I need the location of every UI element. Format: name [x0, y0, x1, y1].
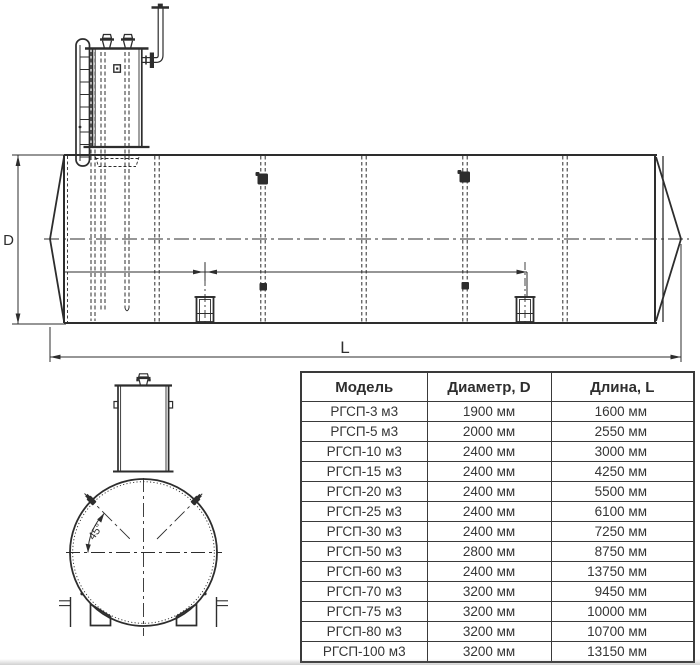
vent-pipe [142, 4, 169, 68]
cell-length: 10700 мм [551, 622, 694, 642]
table-row: РГСП-30 м32400 мм7250 мм [301, 522, 694, 542]
table-row: РГСП-10 м32400 мм3000 мм [301, 442, 694, 462]
table-row: РГСП-80 м33200 мм10700 мм [301, 622, 694, 642]
table-row: РГСП-50 м32800 мм8750 мм [301, 542, 694, 562]
cell-diameter: 2400 мм [427, 502, 551, 522]
dimension-L: L [50, 244, 681, 362]
cell-diameter: 2400 мм [427, 442, 551, 462]
table-row: РГСП-60 м32400 мм13750 мм [301, 562, 694, 582]
photo-edge-shadow [0, 659, 700, 665]
technological-shaft [84, 49, 150, 167]
col-header-model: Модель [301, 372, 427, 402]
cell-model: РГСП-30 м3 [301, 522, 427, 542]
cell-diameter: 3200 мм [427, 602, 551, 622]
roof-nozzle-2 [121, 35, 135, 49]
cell-diameter: 2400 мм [427, 562, 551, 582]
cell-length: 13750 мм [551, 562, 694, 582]
dimension-45deg: 45° [86, 513, 106, 552]
cell-length: 5500 мм [551, 482, 694, 502]
cell-model: РГСП-15 м3 [301, 462, 427, 482]
cell-length: 9450 мм [551, 582, 694, 602]
pipe-end-cap [125, 308, 129, 311]
cell-model: РГСП-60 м3 [301, 562, 427, 582]
cell-diameter: 1900 мм [427, 402, 551, 422]
cell-model: РГСП-75 м3 [301, 602, 427, 622]
label-D: D [3, 232, 14, 249]
cell-model: РГСП-25 м3 [301, 502, 427, 522]
tank-front-view: 45° [59, 374, 228, 636]
tank-drawing-page: D L [0, 0, 700, 665]
cell-diameter: 2800 мм [427, 542, 551, 562]
cell-length: 6100 мм [551, 502, 694, 522]
cell-model: РГСП-10 м3 [301, 442, 427, 462]
tank-side-view: D L [3, 4, 689, 362]
cell-length: 10000 мм [551, 602, 694, 622]
front-shaft [113, 386, 174, 472]
cell-model: РГСП-50 м3 [301, 542, 427, 562]
spec-table-container: Модель Диаметр, D Длина, L РГСП-3 м31900… [300, 371, 695, 663]
table-row: РГСП-3 м31900 мм1600 мм [301, 402, 694, 422]
table-row: РГСП-70 м33200 мм9450 мм [301, 582, 694, 602]
front-top-nozzle [136, 374, 150, 386]
cell-diameter: 3200 мм [427, 582, 551, 602]
cell-length: 8750 мм [551, 542, 694, 562]
cell-model: РГСП-80 м3 [301, 622, 427, 642]
cell-model: РГСП-3 м3 [301, 402, 427, 422]
dimension-supports-span [65, 263, 527, 297]
table-row: РГСП-25 м32400 мм6100 мм [301, 502, 694, 522]
label-L: L [340, 338, 349, 357]
cell-length: 3000 мм [551, 442, 694, 462]
table-row: РГСП-20 м32400 мм5500 мм [301, 482, 694, 502]
col-header-length: Длина, L [551, 372, 694, 402]
cell-model: РГСП-20 м3 [301, 482, 427, 502]
pipe-flange [150, 53, 154, 69]
cell-model: РГСП-70 м3 [301, 582, 427, 602]
cell-length: 7250 мм [551, 522, 694, 542]
table-header-row: Модель Диаметр, D Длина, L [301, 372, 694, 402]
cell-diameter: 2000 мм [427, 422, 551, 442]
table-row: РГСП-15 м32400 мм4250 мм [301, 462, 694, 482]
cell-length: 4250 мм [551, 462, 694, 482]
table-row: РГСП-75 м33200 мм10000 мм [301, 602, 694, 622]
cell-diameter: 2400 мм [427, 522, 551, 542]
cell-diameter: 2400 мм [427, 462, 551, 482]
internal-pipes [91, 52, 129, 321]
cell-length: 2550 мм [551, 422, 694, 442]
cell-model: РГСП-5 м3 [301, 422, 427, 442]
col-header-diameter: Диаметр, D [427, 372, 551, 402]
cell-diameter: 3200 мм [427, 622, 551, 642]
roof-nozzle-1 [100, 35, 114, 49]
cell-diameter: 2400 мм [427, 482, 551, 502]
spec-table: Модель Диаметр, D Длина, L РГСП-3 м31900… [300, 371, 695, 663]
cell-length: 1600 мм [551, 402, 694, 422]
table-row: РГСП-5 м32000 мм2550 мм [301, 422, 694, 442]
